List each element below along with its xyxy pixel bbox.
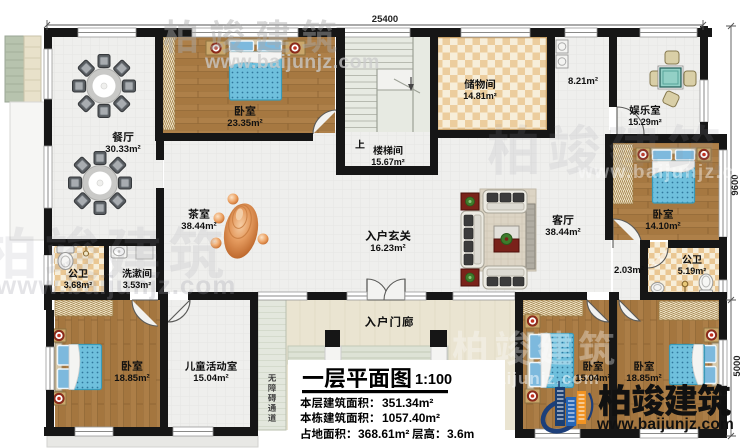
svg-text:1057.40m²: 1057.40m² [382,411,440,425]
svg-text:5.19m²: 5.19m² [678,266,707,276]
svg-text:5000: 5000 [732,355,743,376]
svg-text:8.21m²: 8.21m² [568,76,598,87]
svg-text:1:100: 1:100 [415,372,452,388]
svg-text:18.85m²: 18.85m² [626,373,661,384]
svg-text:16.23m²: 16.23m² [370,243,405,254]
svg-text:15.04m²: 15.04m² [575,373,610,384]
svg-text:351.34m²: 351.34m² [382,396,433,410]
svg-text:15.67m²: 15.67m² [371,157,405,167]
svg-text:2.03m²: 2.03m² [614,265,644,276]
svg-text:30.33m²: 30.33m² [105,144,140,155]
svg-text:15.04m²: 15.04m² [193,373,228,384]
svg-text:14.81m²: 14.81m² [463,91,497,101]
svg-text:3.6m: 3.6m [447,427,474,441]
svg-text:18.85m²: 18.85m² [114,373,149,384]
svg-text:15.29m²: 15.29m² [628,117,662,127]
svg-text:38.44m²: 38.44m² [181,221,216,232]
svg-text:38.44m²: 38.44m² [545,227,580,238]
svg-text:www.baijunjz.com: www.baijunjz.com [0,270,236,300]
svg-text:www.baijunjz.com: www.baijunjz.com [596,416,734,433]
svg-text:3.53m²: 3.53m² [123,280,152,290]
svg-text:14.10m²: 14.10m² [645,221,680,232]
svg-text:www.baijunjz.com: www.baijunjz.com [204,51,380,73]
svg-text:25400: 25400 [372,14,398,25]
svg-text:www.baijunjz.com: www.baijunjz.com [577,162,750,183]
svg-text:368.61m²: 368.61m² [358,427,409,441]
svg-text:23.35m²: 23.35m² [227,118,262,129]
svg-text:3.68m²: 3.68m² [64,280,93,290]
